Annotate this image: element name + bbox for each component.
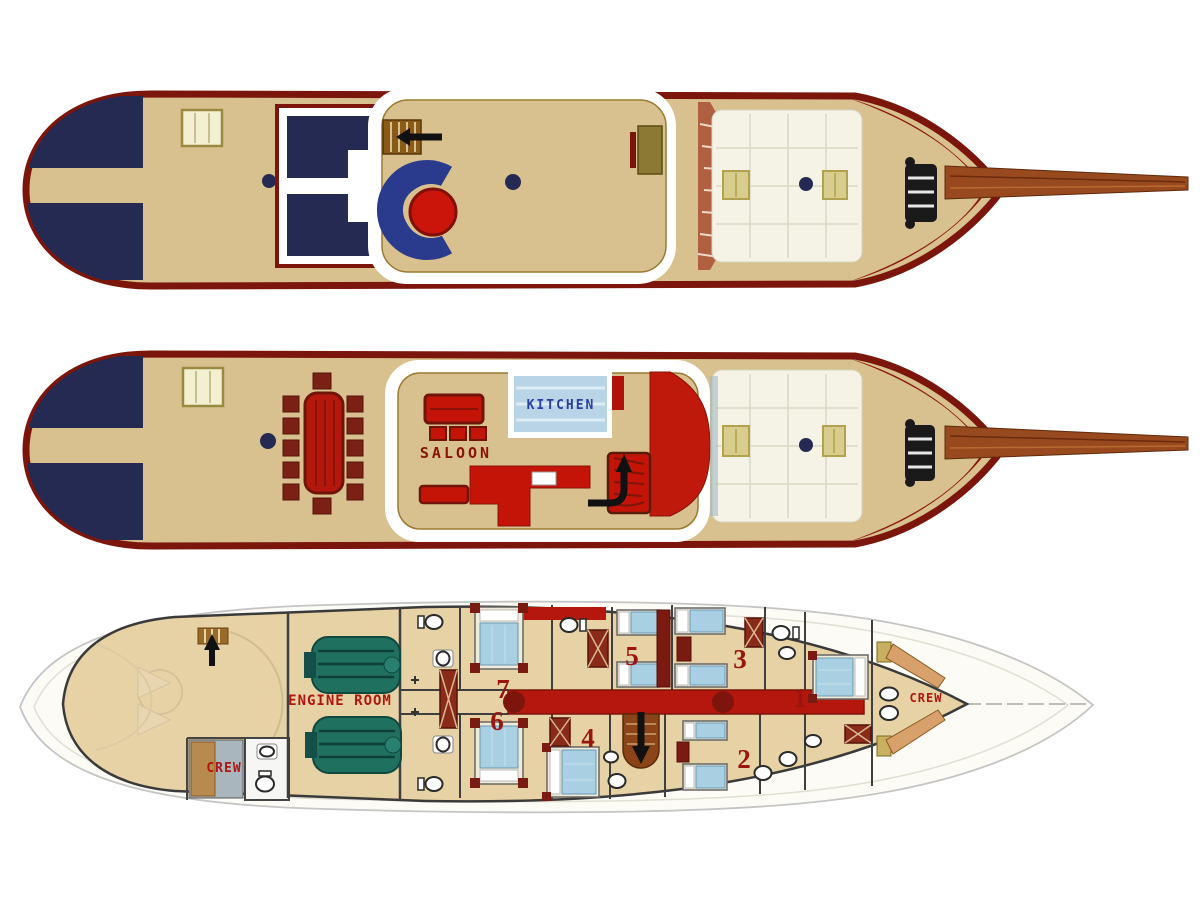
- bar-sink: [532, 472, 556, 485]
- wardrobe: [588, 630, 608, 667]
- cabin6-number: 6: [490, 706, 504, 736]
- wardrobe: [745, 618, 763, 647]
- mast-dot: [260, 433, 276, 449]
- aft-seating-box: [277, 106, 380, 266]
- toilet-icon: [561, 618, 587, 632]
- bowsprit: [945, 426, 1188, 459]
- crew-aft-label: CREW: [206, 761, 241, 776]
- kitchen-label: KITCHEN: [527, 398, 596, 413]
- sink-icon: [257, 744, 277, 759]
- toilet-icon: [418, 777, 443, 791]
- bowsprit: [945, 166, 1188, 199]
- sink-icon: [433, 650, 453, 667]
- sink-icon: [880, 688, 898, 701]
- wardrobe: [440, 670, 457, 728]
- cabin5-number: 5: [625, 641, 639, 671]
- sink-icon: [433, 736, 453, 753]
- cabin4-number: 4: [581, 723, 595, 753]
- sink-icon: [604, 752, 618, 763]
- sink-icon: [805, 735, 821, 747]
- cabin3-number: 3: [733, 644, 747, 674]
- lower-deck-plan: CREW ENGINE ROOM: [0, 592, 1200, 857]
- toilet-icon: [609, 774, 626, 788]
- foredeck-hatch: [723, 426, 749, 456]
- mast-dot: [799, 177, 813, 191]
- saloon-stools: [430, 427, 486, 440]
- toilet-icon: [780, 752, 797, 766]
- saloon-sofa: [425, 395, 483, 423]
- wardrobe: [845, 725, 871, 743]
- toilet-icon: [256, 771, 274, 792]
- engine-room-label: ENGINE ROOM: [288, 693, 392, 709]
- cabin2-number: 2: [737, 744, 751, 774]
- crew-bow-label: CREW: [910, 691, 943, 705]
- engine-port: [304, 637, 400, 693]
- sink-icon: [779, 647, 795, 659]
- anchor-windlass: [905, 157, 937, 229]
- engine-room: ENGINE ROOM: [288, 637, 401, 773]
- cabin1-bed: [808, 651, 868, 703]
- toilet-icon: [755, 766, 772, 780]
- sun-deck-plan: [10, 86, 1195, 296]
- cabin7-number: 7: [496, 674, 510, 704]
- kitchen-area: KITCHEN: [508, 370, 612, 438]
- wardrobe: [550, 718, 570, 746]
- anchor-windlass: [905, 419, 935, 487]
- toilet-icon: [773, 626, 800, 640]
- foredeck-hatch: [823, 426, 845, 456]
- saloon-sofa: [420, 486, 468, 503]
- deck-hatch: [182, 110, 222, 146]
- helm-console: [630, 126, 662, 174]
- crew-cabin-aft: CREW: [187, 738, 289, 800]
- mast-dot: [799, 438, 813, 452]
- cabin1-number: 1: [793, 683, 807, 713]
- yacht-deck-plan: SALOON KITCHEN: [0, 0, 1200, 900]
- foredeck-hatch: [723, 171, 749, 199]
- toilet-icon: [418, 615, 443, 629]
- mast-dot: [505, 174, 521, 190]
- toilet-icon: [880, 706, 898, 720]
- main-deck-plan: SALOON KITCHEN: [10, 346, 1195, 556]
- cabin7-bed: [470, 603, 528, 673]
- saloon-label: SALOON: [420, 444, 492, 462]
- engine-starboard: [305, 717, 401, 773]
- foredeck-hatch: [823, 171, 847, 199]
- deck-hatch: [183, 368, 223, 406]
- mast-dot: [262, 174, 276, 188]
